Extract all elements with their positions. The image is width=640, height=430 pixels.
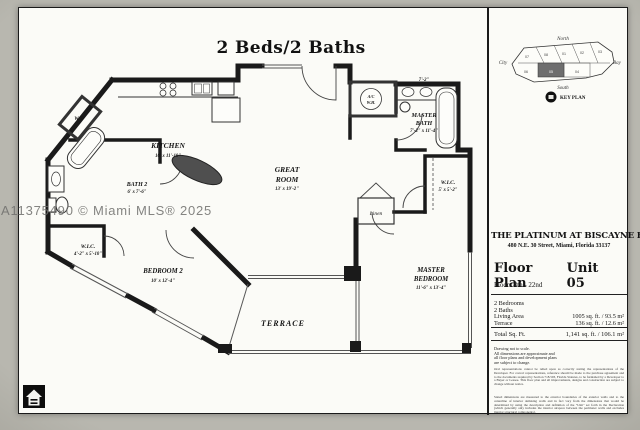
divider [491,340,627,341]
bedroom2-dims: 10' x 12'-4" [151,279,175,284]
equal-housing-logo [23,385,45,408]
divider [491,327,627,328]
bath2-dims: 6' x 7'-6" [128,190,147,195]
bedroom2-door-arc [166,230,194,258]
refrigerator [212,98,240,122]
building-name: THE PLATINUM AT BISCAYNE BAY [491,231,627,241]
master-bedroom-label-1: MASTER [416,267,445,274]
kitchen-dims: 10' x 11'-10" [155,154,181,159]
dishwasher [218,82,234,95]
total-area-value: 1,141 sq. ft. / 106.1 m² [566,331,624,338]
linen-label: Linen [369,211,383,217]
bedroom2-label: BEDROOM 2 [142,268,183,275]
wic2-dims: 4'-2" x 5'-10" [73,252,102,257]
master-bath-label-2: BATH [415,120,433,127]
master-toilet [400,102,410,112]
great-room-label-1: GREAT [275,165,300,174]
cooktop [160,83,176,96]
master-sink-2 [420,88,432,97]
terrace-label: TERRACE [261,319,305,328]
legal-disclaimer-paragraph-1: Oral representations cannot be relied up… [491,368,627,387]
entry-door-arc [302,66,336,100]
mls-watermark: A11375490 © Miami MLS® 2025 [1,203,301,218]
terrace-area-row: Terrace 136 sq. ft. / 12.6 m² [491,320,627,327]
total-area-label: Total Sq. Ft. [494,331,526,338]
bath2-sink [52,172,61,186]
master-bedroom-dims: 11'-6" x 13'-4" [416,286,446,291]
terrace-area-label: Terrace [494,320,512,327]
master-bedroom-label-2: BEDROOM [413,276,449,283]
building-address: 480 N.E. 30 Street, Miami, Florida 33137 [491,243,627,249]
bath2-label: BATH 2 [126,182,148,188]
master-bath-label-1: MASTER [410,112,436,119]
master-bath-dims: 7'-2" x 11'-4" [410,129,438,134]
total-area-row: Total Sq. Ft. 1,141 sq. ft. / 106.1 m² [491,331,627,338]
great-room-dims: 13' x 19'-2" [275,187,299,192]
great-room-label-2: ROOM [275,175,299,184]
master-wic-dims: 5' x 5'-2" [439,188,458,193]
disclaimer-line: are subject to change. [494,361,627,366]
disclaimer-notes: Drawing not to scale. All dimensions are… [491,347,627,365]
wic2-door-arc [104,236,124,256]
wic2-label: W.I.C. [81,244,95,250]
info-panel: THE PLATINUM AT BISCAYNE BAY 480 N.E. 30… [489,9,629,415]
wd-label: W/D [74,117,84,122]
master-wic-label: W.I.C. [441,180,455,186]
wh-label: W.H. [367,100,376,105]
master-wic-door-arc [403,186,425,208]
ac-closet [350,82,396,116]
ac-label: A/C [367,94,375,99]
terrace-area-value: 136 sq. ft. / 12.6 m² [575,320,624,327]
top-dimension: 7'-2" [419,78,430,83]
kitchen-label: KITCHEN [150,141,185,150]
legal-disclaimer-paragraph-2: Stated dimensions are measured to the ex… [491,396,627,415]
linen-bifold-doors [360,183,392,198]
divider [491,294,627,295]
floors-range: Floors 8th - 22nd [491,281,627,289]
master-sink-1 [402,88,414,97]
